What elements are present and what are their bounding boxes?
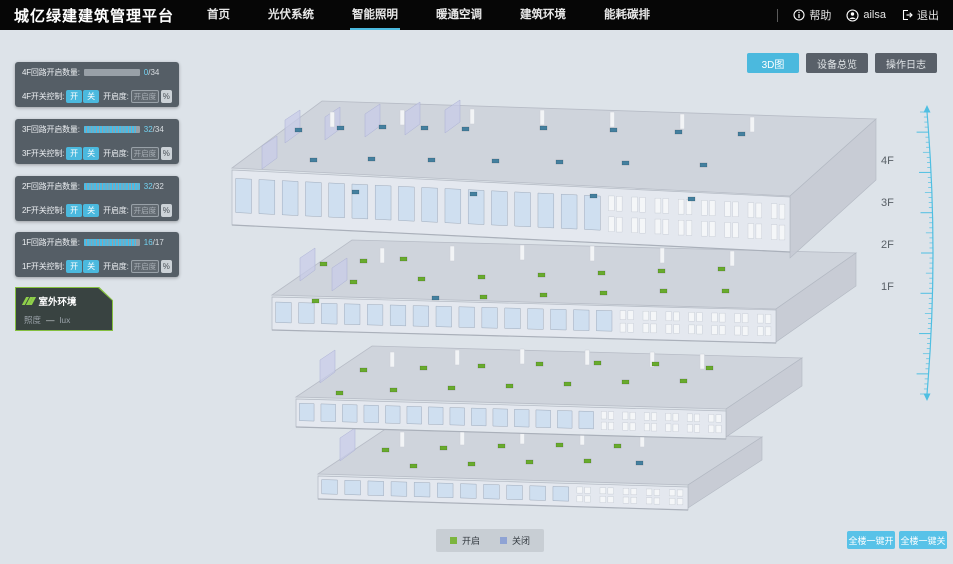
light-marker-off bbox=[352, 190, 359, 194]
floor-panel-2f: 2F回路开启数量:32/322F开关控制:开关开启度:% bbox=[15, 176, 179, 221]
light-marker-on bbox=[336, 391, 343, 395]
user-bar-divider bbox=[777, 9, 778, 22]
light-marker-on bbox=[594, 361, 601, 365]
percent-confirm-button[interactable]: % bbox=[161, 204, 172, 217]
switch-on-button[interactable]: 开 bbox=[66, 90, 82, 103]
username-label: ailsa bbox=[863, 9, 886, 21]
logout-link[interactable]: 退出 bbox=[901, 7, 939, 23]
light-marker-off bbox=[688, 197, 695, 201]
legend-item-0: 开启 bbox=[450, 534, 480, 547]
switch-button-group: 开关 bbox=[66, 260, 99, 273]
light-marker-on bbox=[506, 384, 513, 388]
floor-panel-1f: 1F回路开启数量:16/171F开关控制:开关开启度:% bbox=[15, 232, 179, 277]
light-marker-off bbox=[432, 296, 439, 300]
light-marker-off bbox=[675, 130, 682, 134]
building-3d-model[interactable] bbox=[232, 100, 876, 510]
circuit-count-row: 1F回路开启数量:16/17 bbox=[22, 237, 172, 248]
building-floor-2f bbox=[296, 346, 802, 439]
light-marker-on bbox=[706, 366, 713, 370]
circuit-count-row: 4F回路开启数量:0/34 bbox=[22, 67, 172, 78]
floor-label-2f: 2F bbox=[881, 239, 894, 251]
floor-label-3f: 3F bbox=[881, 197, 894, 209]
switch-off-button[interactable]: 关 bbox=[83, 90, 99, 103]
bulk-button-1[interactable]: 全楼一键关 bbox=[899, 531, 947, 549]
light-marker-off bbox=[590, 194, 597, 198]
light-marker-off bbox=[622, 161, 629, 165]
nav-tab-5[interactable]: 能耗碳排 bbox=[602, 0, 652, 30]
light-marker-on bbox=[410, 464, 417, 468]
light-marker-on bbox=[540, 293, 547, 297]
legend-swatch bbox=[450, 537, 457, 544]
light-marker-on bbox=[360, 368, 367, 372]
light-marker-on bbox=[350, 280, 357, 284]
view-button-1[interactable]: 设备总览 bbox=[806, 53, 868, 73]
app-window: 城亿绿建建筑管理平台 首页光伏系统智能照明暖通空调建筑环境能耗碳排 帮助 ail… bbox=[0, 0, 953, 564]
building-floor-3f bbox=[272, 240, 856, 343]
nav-tab-3[interactable]: 暖通空调 bbox=[434, 0, 484, 30]
user-icon bbox=[846, 9, 859, 22]
switch-on-button[interactable]: 开 bbox=[66, 147, 82, 160]
light-marker-on bbox=[382, 448, 389, 452]
switch-label: 4F开关控制: bbox=[22, 91, 64, 102]
help-label: 帮助 bbox=[809, 7, 831, 23]
nav-tab-0[interactable]: 首页 bbox=[205, 0, 232, 30]
view-button-2[interactable]: 操作日志 bbox=[875, 53, 937, 73]
light-marker-on bbox=[312, 299, 319, 303]
light-marker-on bbox=[390, 388, 397, 392]
view-mode-buttons: 3D图设备总览操作日志 bbox=[747, 53, 937, 73]
dim-level-input[interactable] bbox=[131, 204, 159, 217]
switch-on-button[interactable]: 开 bbox=[66, 260, 82, 273]
light-marker-off bbox=[470, 192, 477, 196]
switch-button-group: 开关 bbox=[66, 90, 99, 103]
app-title: 城亿绿建建筑管理平台 bbox=[14, 5, 174, 26]
circuit-progress-bar bbox=[84, 126, 140, 133]
floor-panel-4f: 4F回路开启数量:0/344F开关控制:开关开启度:% bbox=[15, 62, 179, 107]
circuit-count-value: 16/17 bbox=[144, 238, 164, 247]
floor-label-4f: 4F bbox=[881, 155, 894, 167]
legend-swatch bbox=[500, 537, 507, 544]
env-stripes-icon bbox=[24, 297, 34, 305]
env-metric-row: 照度 — lux bbox=[24, 314, 104, 326]
light-marker-off bbox=[421, 126, 428, 130]
dim-level-label: 开启度: bbox=[103, 91, 128, 102]
light-marker-on bbox=[478, 275, 485, 279]
light-marker-on bbox=[320, 262, 327, 266]
light-marker-on bbox=[418, 277, 425, 281]
help-icon bbox=[793, 9, 805, 21]
light-marker-off bbox=[610, 128, 617, 132]
bulk-action-buttons: 全楼一键开全楼一键关 bbox=[847, 531, 947, 549]
switch-label: 2F开关控制: bbox=[22, 205, 64, 216]
legend-item-1: 关闭 bbox=[500, 534, 530, 547]
light-marker-on bbox=[622, 380, 629, 384]
building-floor-4f bbox=[232, 100, 876, 258]
switch-button-group: 开关 bbox=[66, 204, 99, 217]
light-marker-on bbox=[722, 289, 729, 293]
floor-zoom-ruler[interactable] bbox=[917, 105, 933, 401]
nav-tab-4[interactable]: 建筑环境 bbox=[518, 0, 568, 30]
light-marker-on bbox=[480, 295, 487, 299]
light-marker-off bbox=[337, 126, 344, 130]
nav-tab-2[interactable]: 智能照明 bbox=[350, 0, 400, 30]
percent-confirm-button[interactable]: % bbox=[161, 260, 172, 273]
switch-label: 3F开关控制: bbox=[22, 148, 64, 159]
circuit-count-value: 0/34 bbox=[144, 68, 160, 77]
floor-label-1f: 1F bbox=[881, 281, 894, 293]
light-marker-on bbox=[564, 382, 571, 386]
light-marker-off bbox=[636, 461, 643, 465]
circuit-count-value: 32/34 bbox=[144, 125, 164, 134]
light-marker-on bbox=[652, 362, 659, 366]
light-marker-on bbox=[660, 289, 667, 293]
bulk-button-0[interactable]: 全楼一键开 bbox=[847, 531, 895, 549]
switch-off-button[interactable]: 关 bbox=[83, 147, 99, 160]
switch-control-row: 3F开关控制:开关开启度:% bbox=[22, 147, 172, 160]
circuit-count-label: 2F回路开启数量: bbox=[22, 181, 80, 192]
logout-label: 退出 bbox=[917, 7, 939, 23]
dim-level-label: 开启度: bbox=[103, 261, 128, 272]
user-bar: 帮助 ailsa 退出 bbox=[777, 0, 939, 30]
circuit-count-label: 3F回路开启数量: bbox=[22, 124, 80, 135]
circuit-count-label: 4F回路开启数量: bbox=[22, 67, 80, 78]
circuit-progress-bar bbox=[84, 183, 140, 190]
dim-level-input[interactable] bbox=[131, 90, 159, 103]
light-marker-on bbox=[658, 269, 665, 273]
switch-on-button[interactable]: 开 bbox=[66, 204, 82, 217]
dim-level-label: 开启度: bbox=[103, 148, 128, 159]
legend: 开启关闭 bbox=[436, 529, 544, 552]
switch-control-row: 2F开关控制:开关开启度:% bbox=[22, 204, 172, 217]
env-panel-title: 室外环境 bbox=[39, 294, 77, 308]
light-marker-on bbox=[400, 257, 407, 261]
light-marker-on bbox=[538, 273, 545, 277]
light-marker-off bbox=[492, 159, 499, 163]
circuit-count-row: 3F回路开启数量:32/34 bbox=[22, 124, 172, 135]
circuit-count-label: 1F回路开启数量: bbox=[22, 237, 80, 248]
floor-panel-3f: 3F回路开启数量:32/343F开关控制:开关开启度:% bbox=[15, 119, 179, 164]
switch-off-button[interactable]: 关 bbox=[83, 204, 99, 217]
nav-tab-1[interactable]: 光伏系统 bbox=[266, 0, 316, 30]
light-marker-on bbox=[360, 259, 367, 263]
light-marker-on bbox=[600, 291, 607, 295]
switch-control-row: 4F开关控制:开关开启度:% bbox=[22, 90, 172, 103]
main-view: 4F回路开启数量:0/344F开关控制:开关开启度:%3F回路开启数量:32/3… bbox=[0, 30, 953, 564]
switch-button-group: 开关 bbox=[66, 147, 99, 160]
light-marker-on bbox=[536, 362, 543, 366]
circuit-count-row: 2F回路开启数量:32/32 bbox=[22, 181, 172, 192]
light-marker-off bbox=[700, 163, 707, 167]
light-marker-off bbox=[295, 128, 302, 132]
light-marker-off bbox=[462, 127, 469, 131]
light-marker-on bbox=[498, 444, 505, 448]
percent-confirm-button[interactable]: % bbox=[161, 90, 172, 103]
light-marker-on bbox=[468, 462, 475, 466]
light-marker-on bbox=[448, 386, 455, 390]
switch-control-row: 1F开关控制:开关开启度:% bbox=[22, 260, 172, 273]
env-panel-body: 室外环境 照度 — lux bbox=[16, 288, 112, 330]
dim-level-label: 开启度: bbox=[103, 205, 128, 216]
user-menu[interactable]: ailsa bbox=[846, 9, 886, 22]
light-marker-on bbox=[598, 271, 605, 275]
light-marker-on bbox=[440, 446, 447, 450]
circuit-progress-bar bbox=[84, 239, 140, 246]
main-nav: 首页光伏系统智能照明暖通空调建筑环境能耗碳排 bbox=[188, 0, 669, 30]
light-marker-off bbox=[428, 158, 435, 162]
light-marker-off bbox=[368, 157, 375, 161]
light-marker-off bbox=[310, 158, 317, 162]
top-bar: 城亿绿建建筑管理平台 首页光伏系统智能照明暖通空调建筑环境能耗碳排 帮助 ail… bbox=[0, 0, 953, 30]
env-metric-value: — bbox=[46, 315, 55, 325]
env-metric-label: 照度 bbox=[24, 314, 41, 326]
dim-level-input[interactable] bbox=[131, 260, 159, 273]
circuit-progress-bar bbox=[84, 69, 140, 76]
percent-confirm-button[interactable]: % bbox=[161, 147, 172, 160]
light-marker-on bbox=[526, 460, 533, 464]
logout-icon bbox=[901, 9, 913, 21]
light-marker-on bbox=[718, 267, 725, 271]
env-metric-unit: lux bbox=[60, 315, 71, 325]
light-marker-on bbox=[584, 459, 591, 463]
outdoor-env-panel: 室外环境 照度 — lux bbox=[15, 287, 113, 331]
light-marker-on bbox=[680, 379, 687, 383]
light-marker-off bbox=[556, 160, 563, 164]
light-marker-on bbox=[556, 443, 563, 447]
light-marker-on bbox=[478, 364, 485, 368]
help-link[interactable]: 帮助 bbox=[793, 7, 831, 23]
light-marker-on bbox=[614, 444, 621, 448]
light-marker-off bbox=[738, 132, 745, 136]
switch-label: 1F开关控制: bbox=[22, 261, 64, 272]
switch-off-button[interactable]: 关 bbox=[83, 260, 99, 273]
circuit-count-value: 32/32 bbox=[144, 182, 164, 191]
light-marker-off bbox=[540, 126, 547, 130]
dim-level-input[interactable] bbox=[131, 147, 159, 160]
view-button-0[interactable]: 3D图 bbox=[747, 53, 799, 73]
light-marker-on bbox=[420, 366, 427, 370]
building-3d-scene[interactable] bbox=[0, 30, 953, 564]
light-marker-off bbox=[379, 125, 386, 129]
